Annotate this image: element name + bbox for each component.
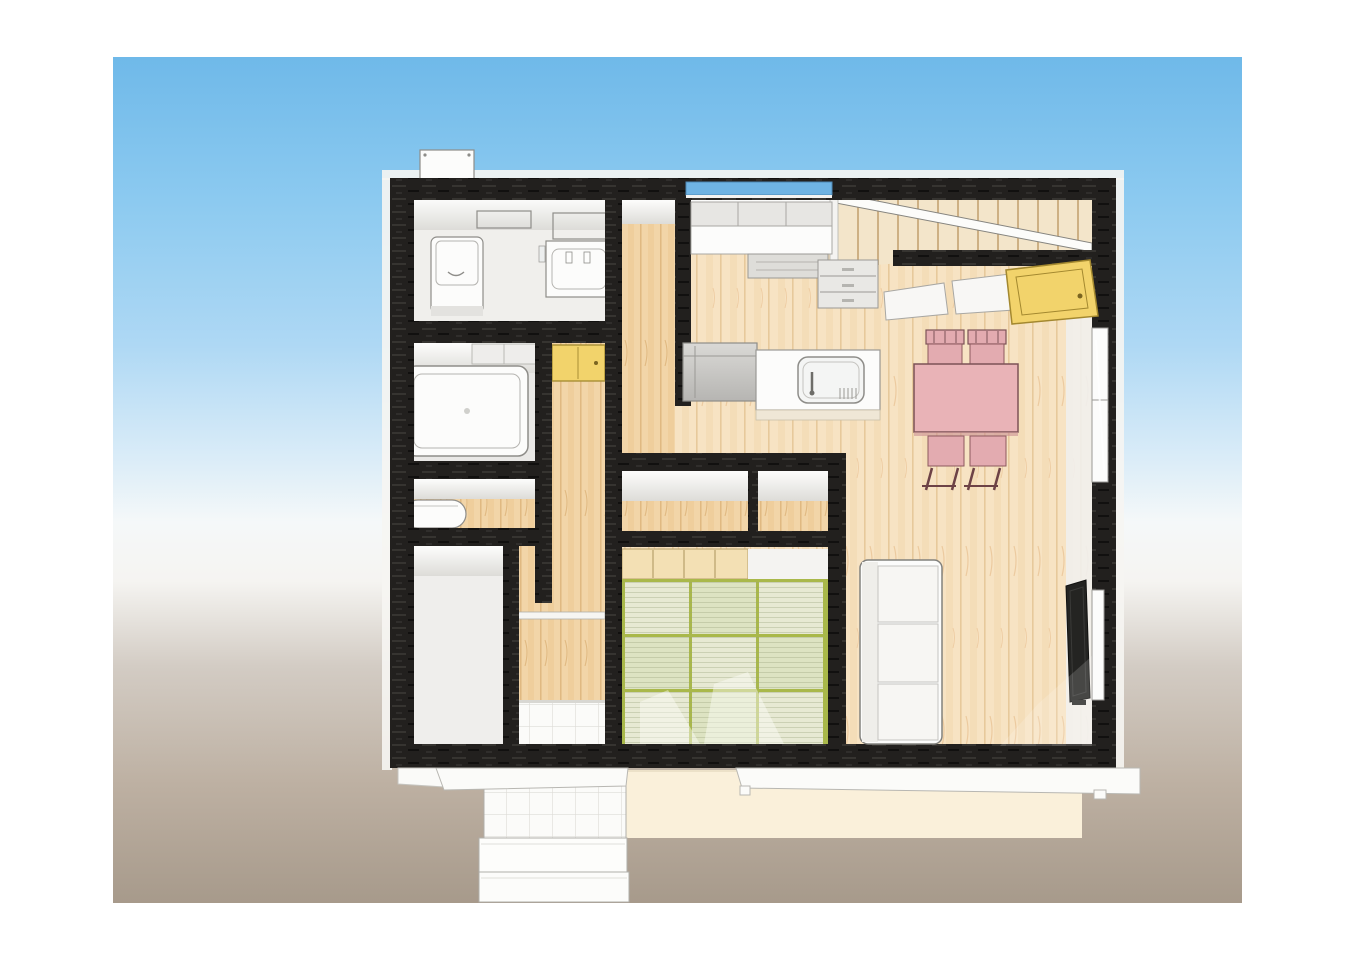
kitchen-window bbox=[686, 182, 832, 195]
wall-tatami-north bbox=[605, 531, 845, 547]
porch-step bbox=[479, 838, 627, 872]
eave-bracket bbox=[740, 786, 750, 795]
eaves-left bbox=[436, 768, 628, 790]
floor-plan-scene bbox=[0, 0, 1358, 960]
kitchen-upper-cabinets bbox=[691, 202, 832, 226]
desk-board bbox=[952, 274, 1014, 314]
toilet-room-wall-face bbox=[414, 198, 605, 230]
vent-screw-icon bbox=[467, 153, 470, 156]
porch-step bbox=[479, 872, 629, 902]
dining-chair bbox=[968, 330, 1006, 368]
kitchen-sink bbox=[798, 357, 864, 403]
tv-side-window bbox=[1092, 590, 1104, 700]
tatami-entry-nook bbox=[748, 549, 828, 579]
sofa bbox=[860, 560, 942, 744]
vent-screw-icon bbox=[423, 153, 426, 156]
island-front-panel bbox=[756, 410, 880, 420]
corridor bbox=[622, 192, 675, 455]
sofa-cushion bbox=[878, 684, 938, 740]
towel-bar bbox=[539, 246, 545, 262]
exterior-vent-box bbox=[420, 150, 474, 181]
cabinet-handle-icon bbox=[1078, 294, 1083, 299]
wall-washroom-storage bbox=[390, 528, 552, 546]
sofa-backrest bbox=[862, 562, 878, 742]
kitchen-counter bbox=[691, 226, 832, 254]
refrigerator bbox=[683, 343, 757, 401]
eave-bracket bbox=[1094, 790, 1106, 799]
yellow-storage-cabinet bbox=[1006, 260, 1098, 324]
house bbox=[382, 150, 1140, 902]
faucet-icon bbox=[584, 252, 590, 263]
corridor-floor bbox=[622, 192, 675, 455]
dining-table bbox=[914, 364, 1018, 432]
rendered-image bbox=[0, 0, 1358, 960]
wall-storage-entrance bbox=[503, 546, 519, 746]
drain-icon bbox=[464, 408, 470, 414]
wall-alcove-north bbox=[605, 453, 845, 471]
faucet-icon bbox=[566, 252, 572, 263]
toilet-room bbox=[414, 198, 619, 325]
tall-window-east bbox=[1092, 328, 1108, 482]
wall-toilet-south bbox=[390, 321, 605, 343]
porch-steps bbox=[479, 772, 629, 902]
entrance-step-edge bbox=[517, 612, 605, 619]
closet-sliding-doors bbox=[622, 549, 748, 579]
cabinet-handle-icon bbox=[594, 361, 598, 365]
entrance-hall bbox=[517, 545, 605, 746]
alcove-left bbox=[622, 471, 748, 531]
wall-bath-washroom bbox=[390, 461, 552, 479]
bathroom bbox=[398, 343, 537, 463]
island-counter bbox=[756, 350, 880, 420]
sofa-cushion bbox=[878, 566, 938, 622]
toilet bbox=[431, 237, 483, 316]
toilet-base-shadow bbox=[431, 306, 483, 316]
wall-tatami-east bbox=[828, 453, 846, 746]
sofa-cushion bbox=[878, 624, 938, 682]
wall-alcove-pillar bbox=[748, 469, 758, 535]
washroom bbox=[398, 479, 537, 528]
tatami-room bbox=[622, 549, 828, 746]
alcove-right bbox=[758, 471, 828, 531]
entrance-platform bbox=[517, 545, 605, 705]
outer-wall-bottom bbox=[390, 744, 1116, 768]
cooktop bbox=[748, 254, 828, 278]
dining-chair bbox=[926, 330, 964, 368]
washroom-wall-face bbox=[398, 479, 537, 499]
entrance-tile-floor bbox=[517, 702, 605, 746]
